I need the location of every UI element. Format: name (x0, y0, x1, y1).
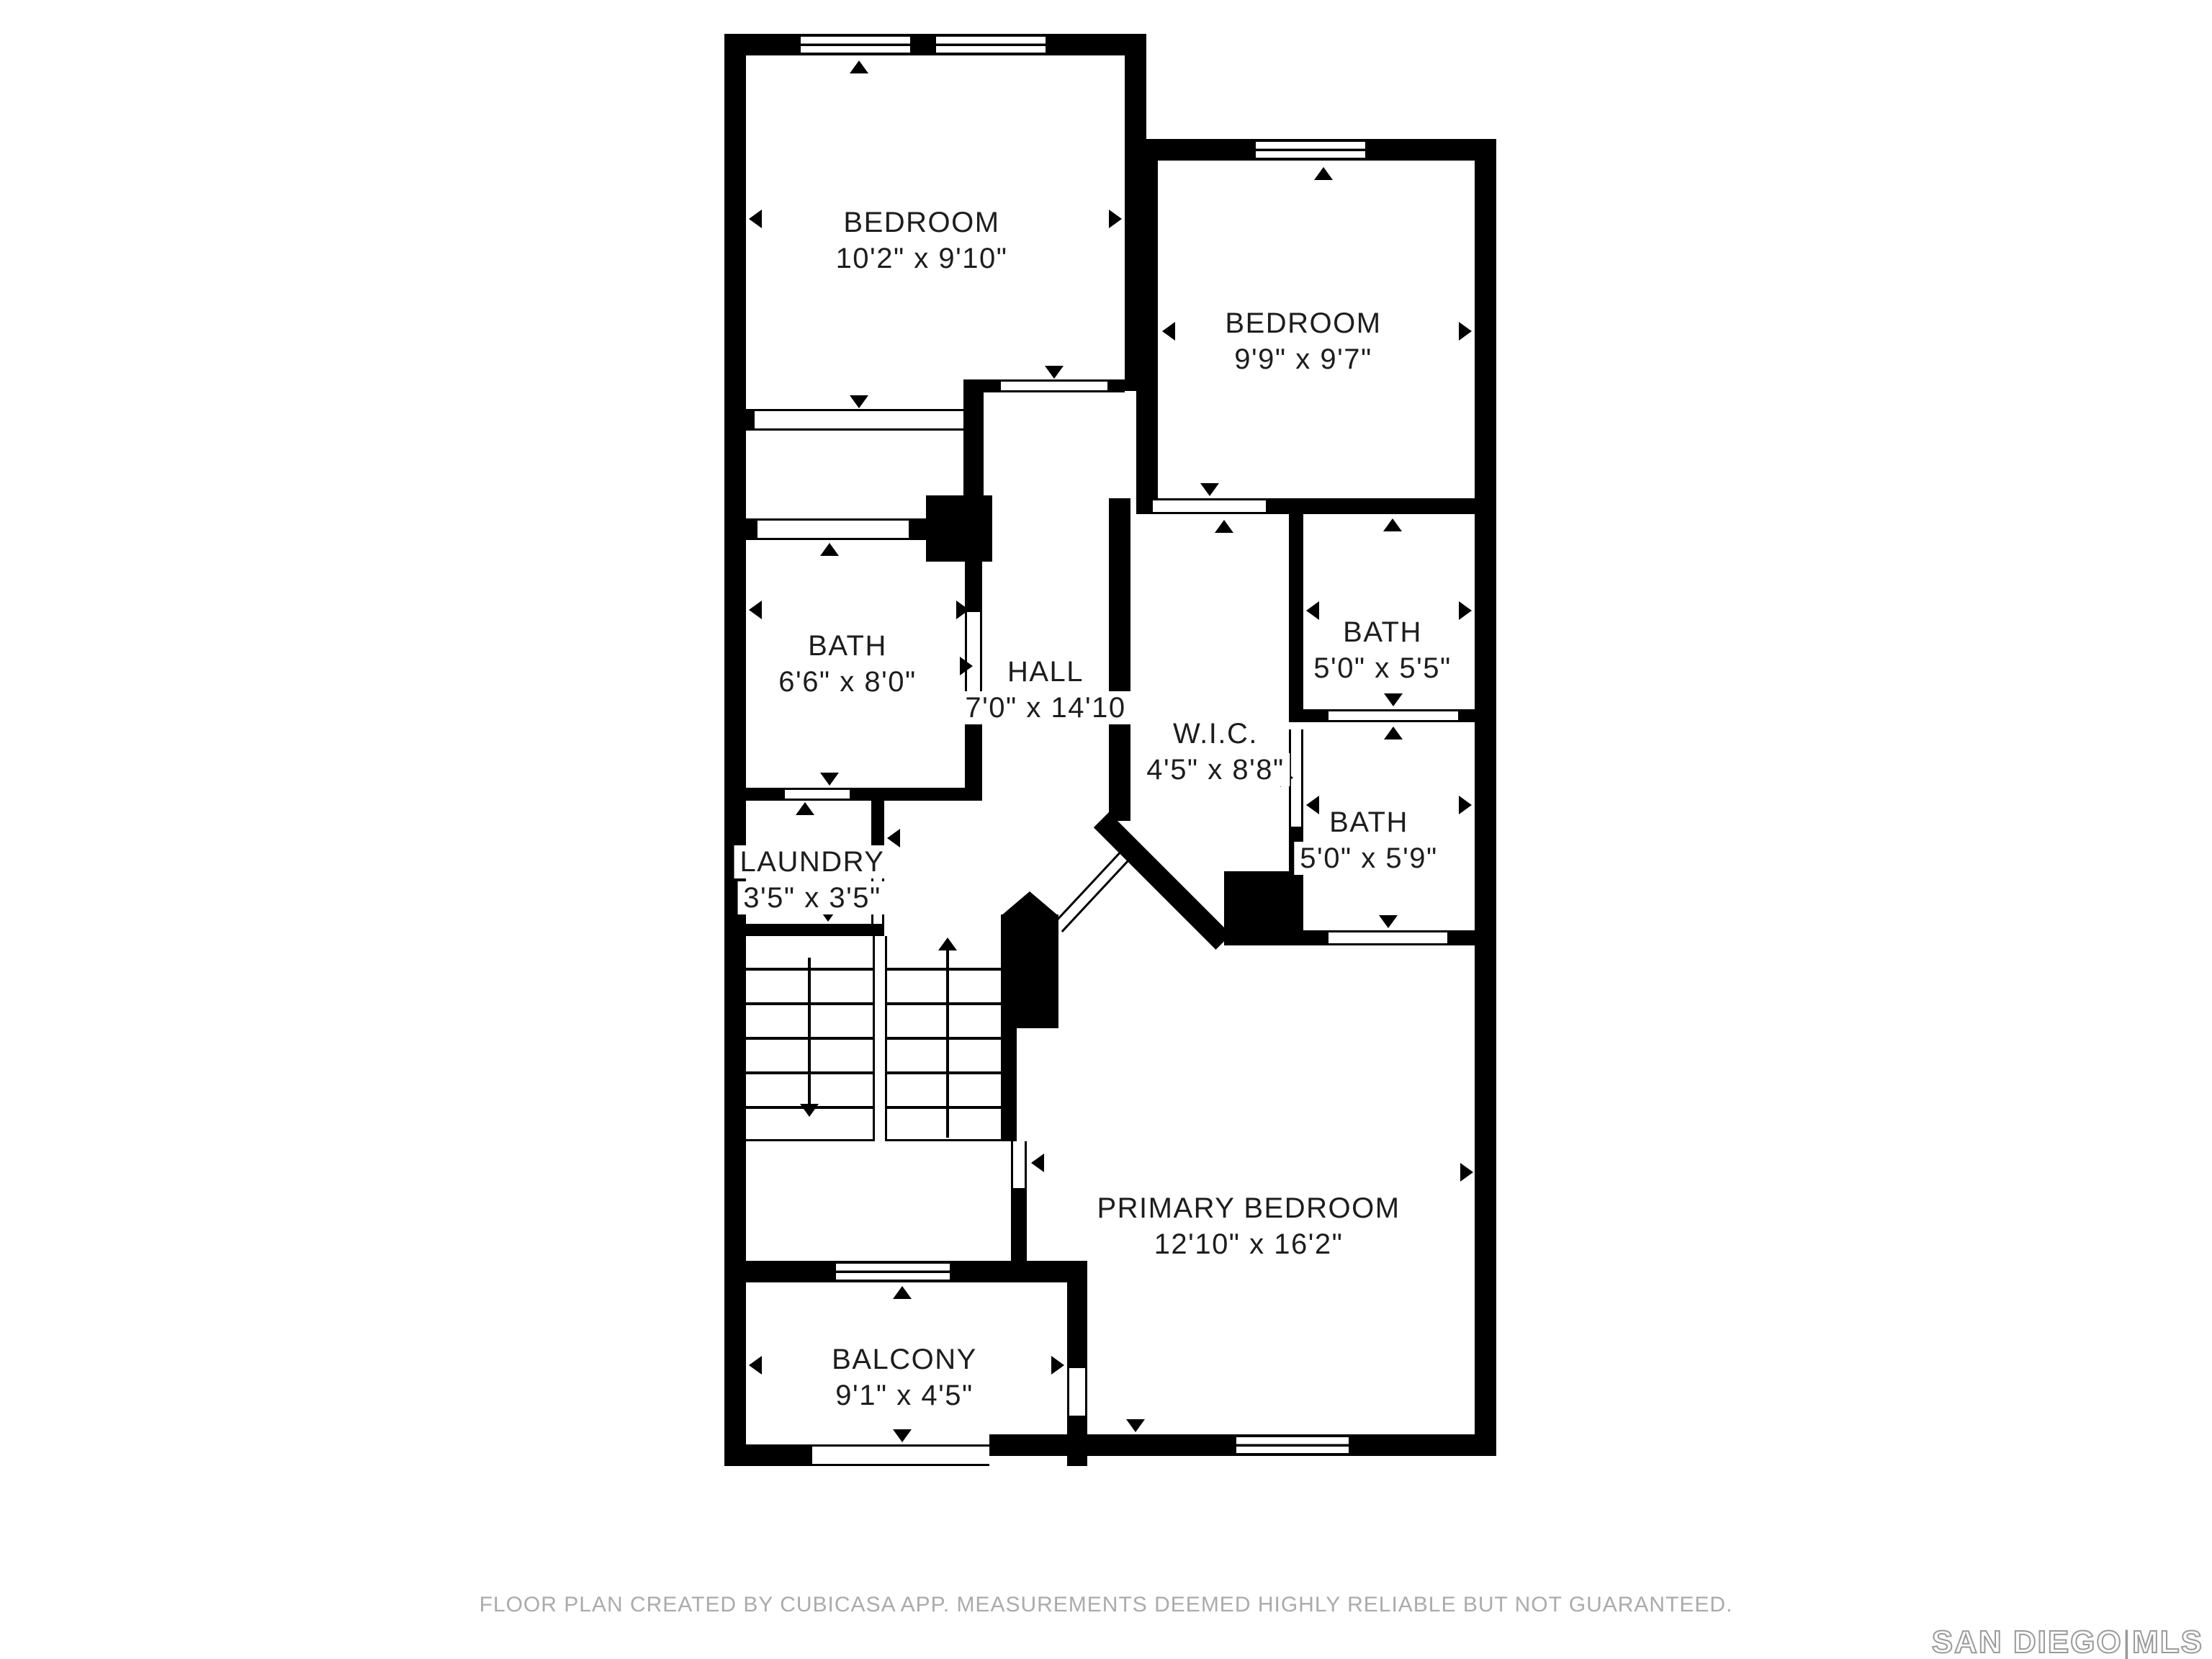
room-label-bedroom2: BEDROOM 9'9" x 9'7" (1219, 307, 1387, 376)
direction-marker-icon (1379, 915, 1398, 928)
direction-marker-icon (1051, 1356, 1064, 1375)
stairs-down-arrow (800, 1104, 819, 1117)
wall-segment (1136, 139, 1158, 514)
room-dims: 5'0" x 5'5" (1308, 652, 1457, 685)
room-name: W.I.C. (1167, 717, 1264, 750)
direction-marker-icon (850, 395, 868, 408)
room-name: BEDROOM (837, 206, 1005, 239)
room-dims: 12'10" x 16'2" (1148, 1228, 1349, 1261)
wall-segment (963, 379, 984, 495)
room-label-bedroom1: BEDROOM 10'2" x 9'10" (830, 206, 1014, 275)
direction-marker-icon (1200, 483, 1219, 496)
door-opening (1011, 1141, 1027, 1188)
stairs-up-arrow (938, 938, 957, 950)
window-symbol (1233, 1434, 1352, 1456)
direction-marker-icon (796, 802, 814, 815)
stairs-down-arrow (808, 958, 811, 1105)
staircase-divider (873, 936, 875, 1141)
room-dims: 9'9" x 9'7" (1228, 343, 1377, 376)
door-opening (1153, 498, 1266, 514)
door-opening (1001, 379, 1107, 392)
room-name: BATH (802, 629, 893, 662)
direction-marker-icon (820, 543, 839, 556)
direction-marker-icon (1459, 601, 1472, 620)
room-label-balcony: BALCONY 9'1" x 4'5" (826, 1343, 983, 1412)
wall-segment (965, 720, 982, 788)
room-name: HALL (1002, 655, 1089, 688)
direction-marker-icon (1109, 210, 1122, 228)
room-dims: 5'0" x 5'9" (1294, 842, 1443, 875)
direction-marker-icon (749, 210, 762, 228)
door-opening-diagonal (1053, 848, 1133, 932)
disclaimer-text: FLOOR PLAN CREATED BY CUBICASA APP. MEAS… (0, 1593, 2212, 1617)
door-opening (785, 788, 850, 801)
direction-marker-icon (1384, 727, 1403, 739)
wall-segment (1475, 139, 1496, 1456)
direction-marker-icon (893, 1429, 912, 1442)
direction-marker-icon (1459, 796, 1472, 814)
room-name: BEDROOM (1219, 307, 1387, 340)
direction-marker-icon (893, 1286, 912, 1299)
wall-segment (724, 34, 746, 1466)
wall-segment (724, 924, 884, 936)
window-symbol (1253, 139, 1368, 161)
direction-marker-icon (1383, 518, 1402, 531)
room-dims: 6'6" x 8'0" (773, 665, 922, 698)
wall-peak (1001, 891, 1058, 916)
balcony-railing-opening (812, 1444, 989, 1466)
direction-marker-icon (1460, 1163, 1473, 1182)
room-label-bath-left: BATH 6'6" x 8'0" (773, 629, 922, 698)
room-label-laundry: LAUNDRY 3'5" x 3'5" (734, 845, 891, 914)
wall-segment (1001, 1026, 1017, 1141)
room-name: LAUNDRY (734, 845, 891, 878)
room-name: PRIMARY BEDROOM (1091, 1192, 1406, 1225)
window-symbol (833, 1261, 953, 1282)
mls-logo-right: MLS (2132, 1624, 2203, 1659)
mls-logo-left: SAN DIEGO (1932, 1624, 2123, 1659)
window-symbol (933, 34, 1048, 55)
staircase-right-run (887, 936, 1001, 1141)
direction-marker-icon (1126, 1419, 1145, 1432)
wall-segment (1067, 1282, 1087, 1368)
direction-marker-icon (1162, 322, 1175, 341)
window-symbol (798, 34, 913, 55)
room-name: BALCONY (826, 1343, 983, 1376)
room-dims: 9'1" x 4'5" (829, 1379, 979, 1412)
direction-marker-icon (956, 601, 969, 619)
door-opening (1067, 1368, 1087, 1416)
direction-marker-icon (1215, 520, 1233, 533)
room-name: BATH (1337, 616, 1428, 649)
room-label-bath-lower-right: BATH 5'0" x 5'9" (1294, 806, 1443, 875)
wall-segment (1289, 514, 1303, 709)
room-name: BATH (1323, 806, 1414, 839)
direction-marker-icon (1031, 1154, 1044, 1172)
room-label-wic: W.I.C. 4'5" x 8'8" (1141, 717, 1290, 786)
wall-segment-diagonal (1094, 812, 1231, 950)
wall-segment (926, 495, 992, 562)
room-dims: 4'5" x 8'8" (1141, 753, 1290, 786)
direction-marker-icon (1459, 322, 1472, 341)
door-opening (755, 409, 963, 431)
wall-segment (1001, 914, 1058, 1028)
door-opening (1328, 930, 1447, 945)
direction-marker-icon (850, 60, 868, 73)
door-opening (1328, 709, 1458, 722)
floor-plan-canvas: BEDROOM 10'2" x 9'10" BEDROOM 9'9" x 9'7… (0, 0, 2212, 1659)
room-label-primary-bedroom: PRIMARY BEDROOM 12'10" x 16'2" (1091, 1192, 1406, 1261)
direction-marker-icon (1384, 693, 1403, 706)
door-opening (757, 518, 909, 540)
room-dims: 10'2" x 9'10" (830, 242, 1014, 275)
room-label-bath-upper-right: BATH 5'0" x 5'5" (1308, 616, 1457, 685)
direction-marker-icon (749, 601, 762, 619)
mls-logo: SAN DIEGO|MLS (1932, 1624, 2203, 1659)
direction-marker-icon (1314, 167, 1333, 180)
staircase-divider (885, 936, 887, 1141)
wall-segment (724, 788, 982, 801)
stairs-up-arrow (946, 950, 949, 1138)
room-label-hall: HALL 7'0" x 14'10 (959, 655, 1131, 724)
mls-logo-separator: | (2123, 1624, 2132, 1659)
direction-marker-icon (749, 1356, 762, 1375)
room-dims: 3'5" x 3'5" (737, 881, 886, 914)
direction-marker-icon (1045, 366, 1064, 379)
direction-marker-icon (820, 773, 839, 786)
room-dims: 7'0" x 14'10 (959, 691, 1131, 724)
